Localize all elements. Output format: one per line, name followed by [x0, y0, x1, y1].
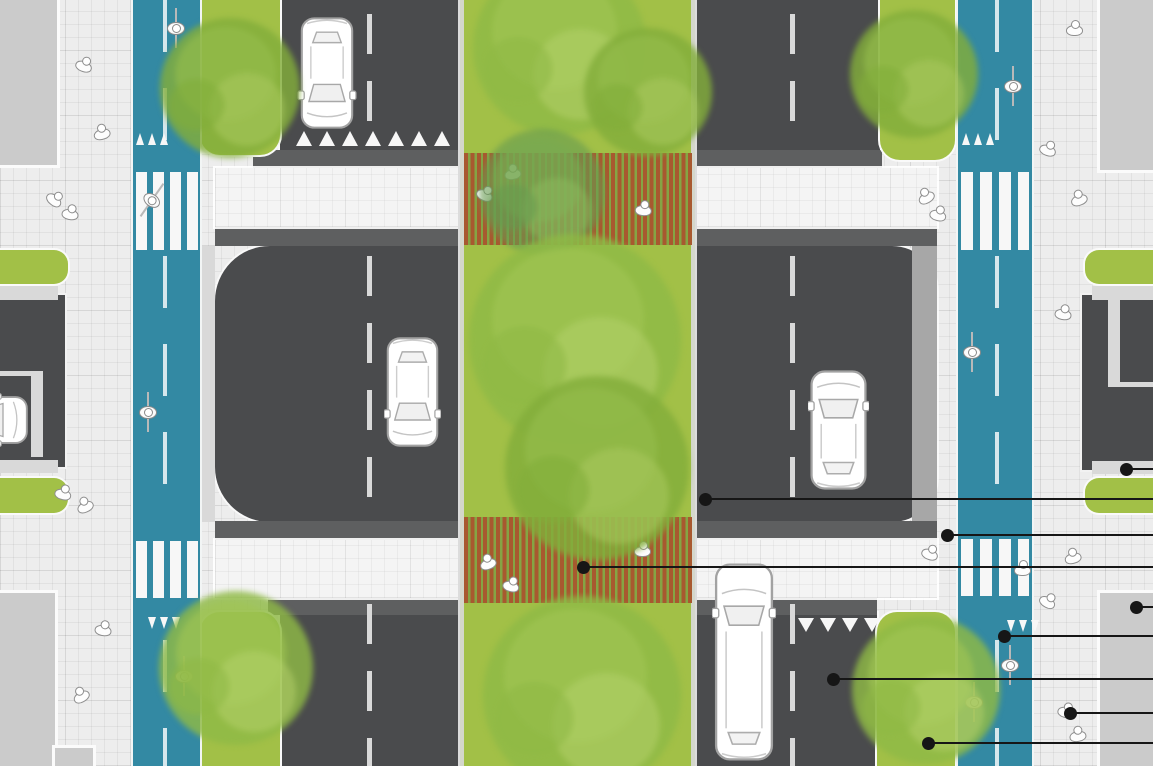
street-plan-canvas [0, 0, 1153, 766]
lane-dash [790, 256, 795, 512]
lane-dash [367, 14, 372, 146]
median [460, 0, 695, 766]
pedestrian [500, 160, 523, 183]
callout-parking-lane-line [833, 678, 1153, 680]
callout-median-walkway-dot [577, 561, 590, 574]
yield-tooth [388, 131, 404, 146]
median-curb [691, 0, 697, 766]
median-curb [458, 0, 464, 766]
car-northbound [808, 369, 869, 491]
yield-tooth [974, 133, 982, 145]
callout-driveway-apron-dot [1120, 463, 1133, 476]
yield-tooth [148, 617, 156, 629]
callout-planting-strip-dot [922, 737, 935, 750]
callout-bike-lane-dot [998, 630, 1011, 643]
driveway-divider [0, 371, 43, 376]
callout-parking-lane-dot [827, 673, 840, 686]
callout-crossing-island-line [947, 534, 1153, 536]
pedestrian [1051, 300, 1074, 323]
pedestrian-head [639, 541, 648, 550]
yield-tooth [962, 133, 970, 145]
building [1100, 0, 1153, 170]
crossing-ramp [215, 227, 460, 246]
raised-crossing-table [215, 168, 460, 227]
driveway-car [0, 391, 29, 449]
callout-travel-lane-line [705, 498, 1153, 500]
car-southbound [384, 336, 441, 448]
yield-tooth [820, 618, 836, 632]
driveway-divider [1108, 382, 1153, 387]
yield-tooth [864, 618, 880, 632]
cyclist-head [172, 24, 181, 33]
pedestrian [632, 197, 654, 219]
planting-verge [880, 0, 955, 160]
building [0, 593, 55, 766]
crossing-ramp [695, 150, 882, 168]
driveway-curb [0, 460, 58, 473]
callout-building-frontage-dot [1130, 601, 1143, 614]
cyclist [166, 8, 186, 48]
bike-lane-dash [163, 640, 167, 766]
curb-strip [912, 246, 937, 522]
lane-dash [367, 604, 372, 766]
cyclist-head [1009, 82, 1018, 91]
crossing-ramp [695, 521, 937, 540]
callout-bike-lane-line [1004, 635, 1153, 637]
bike-crosswalk-zebra [961, 172, 1029, 250]
yield-tooth [1031, 620, 1039, 632]
yield-tooth [342, 131, 358, 146]
van-northbound [712, 562, 776, 762]
pedestrian [1012, 558, 1032, 578]
driveway-curb [0, 286, 58, 300]
cyclist-head [1006, 661, 1015, 670]
median-boardwalk [464, 153, 692, 245]
pedestrian-head [1071, 20, 1080, 29]
lane-dash [790, 604, 795, 766]
yield-tooth [136, 133, 144, 145]
yield-tooth [411, 131, 427, 146]
cyclist [138, 392, 158, 432]
crossing-ramp [215, 521, 460, 540]
cyclist-head [180, 672, 189, 681]
cyclist-head [970, 698, 979, 707]
yield-tooth [1019, 620, 1027, 632]
cyclist [962, 332, 982, 372]
cyclist [964, 682, 984, 722]
pedestrian [58, 200, 81, 223]
lane-dash [367, 256, 372, 512]
yield-tooth [798, 618, 814, 632]
lane-dash [790, 14, 795, 146]
yield-tooth [319, 131, 335, 146]
roadway-segment [695, 0, 880, 152]
bike-lane-dash [163, 256, 167, 514]
pedestrian [632, 539, 652, 559]
yield-tooth [842, 618, 858, 632]
bike-lane-dash [995, 256, 999, 514]
callout-planting-strip-line [928, 742, 1153, 744]
pedestrian [91, 616, 114, 639]
callout-travel-lane-dot [699, 493, 712, 506]
planting-verge [1085, 478, 1153, 513]
yield-tooth [160, 133, 168, 145]
planting-verge [1085, 250, 1153, 284]
yield-tooth [296, 131, 312, 146]
yield-tooth [148, 133, 156, 145]
driveway-curb [1092, 286, 1153, 300]
building [0, 0, 57, 165]
bike-crosswalk-zebra [136, 541, 198, 598]
callout-crossing-island-dot [941, 529, 954, 542]
yield-tooth [172, 617, 180, 629]
yield-tooth [160, 617, 168, 629]
yield-tooth [434, 131, 450, 146]
callout-sidewalk-dot [1064, 707, 1077, 720]
raised-crossing-table [215, 540, 460, 598]
crossing-ramp [695, 227, 937, 246]
planting-verge [0, 250, 68, 284]
cyclist-head [968, 348, 977, 357]
cyclist-head [144, 408, 153, 417]
crossing-ramp [253, 150, 460, 168]
crossing-ramp [268, 598, 460, 615]
driveway-divider [1108, 300, 1120, 384]
callout-sidewalk-line [1070, 712, 1153, 714]
driveway-divider [31, 375, 43, 457]
bike-lane-dash [995, 0, 999, 146]
raised-crossing-table [695, 168, 937, 227]
yield-tooth [365, 131, 381, 146]
bike-lane-dash [995, 640, 999, 766]
cyclist [174, 656, 194, 696]
yield-tooth [986, 133, 994, 145]
curb-strip [200, 246, 215, 522]
building [55, 748, 93, 766]
pedestrian [1064, 18, 1084, 38]
parked-car [296, 16, 358, 130]
cyclist [1003, 66, 1023, 106]
callout-median-walkway-line [583, 566, 1153, 568]
planting-verge [200, 0, 280, 155]
planting-verge [200, 612, 280, 766]
